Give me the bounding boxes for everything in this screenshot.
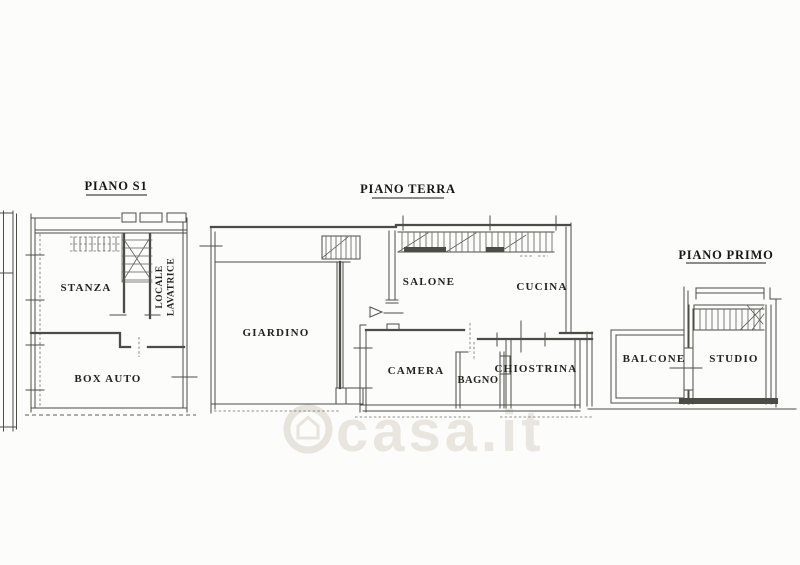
room-label-camera: CAMERA	[388, 365, 445, 377]
plan-piano-terra: PIANO TERRA GIARDINO SALONE CUCINA CAMER…	[200, 182, 592, 417]
house-in-circle-icon	[287, 408, 329, 450]
room-label-lavatrice: LAVATRICE	[167, 258, 177, 316]
room-label-balcone: BALCONE	[623, 353, 686, 365]
room-label-stanza: STANZA	[60, 282, 111, 294]
walls	[200, 216, 592, 413]
room-label-salone: SALONE	[403, 276, 455, 288]
room-label-cucina: CUCINA	[516, 281, 567, 293]
window-sills	[404, 247, 504, 252]
boundary-lines	[0, 211, 17, 431]
plan-title-piano-s1: PIANO S1	[84, 179, 147, 193]
upper-stair-dashes	[70, 237, 122, 251]
room-label-studio: STUDIO	[709, 353, 758, 365]
top-wall-piers	[122, 213, 186, 222]
staircase-hatching	[322, 236, 356, 259]
plan-piano-primo: PIANO PRIMO BALCONE STUDIO	[588, 248, 796, 409]
room-label-chiostrina: CHIOSTRINA	[495, 363, 578, 375]
staircase-hatching	[122, 234, 152, 282]
floorplan-drawing: casa.it PIANO S1 STANZA LOCALE LAVATRICE…	[0, 0, 800, 565]
watermark-text: casa.it	[336, 399, 545, 464]
room-label-bagno: BAGNO	[457, 375, 498, 386]
plan-title-piano-primo: PIANO PRIMO	[678, 248, 773, 262]
house-icon	[298, 418, 318, 439]
entrance-arrow-icon	[370, 307, 382, 317]
room-label-giardino: GIARDINO	[242, 327, 309, 339]
watermark: casa.it	[287, 399, 545, 464]
bottom-wall	[679, 398, 778, 404]
floorplan-scan: casa.it PIANO S1 STANZA LOCALE LAVATRICE…	[0, 0, 800, 565]
room-label-locale: LOCALE	[155, 265, 165, 308]
room-label-box-auto: BOX AUTO	[74, 373, 141, 385]
plan-piano-s1: PIANO S1 STANZA LOCALE LAVATRICE BOX AUT…	[0, 179, 197, 431]
plan-title-piano-terra: PIANO TERRA	[360, 182, 456, 196]
